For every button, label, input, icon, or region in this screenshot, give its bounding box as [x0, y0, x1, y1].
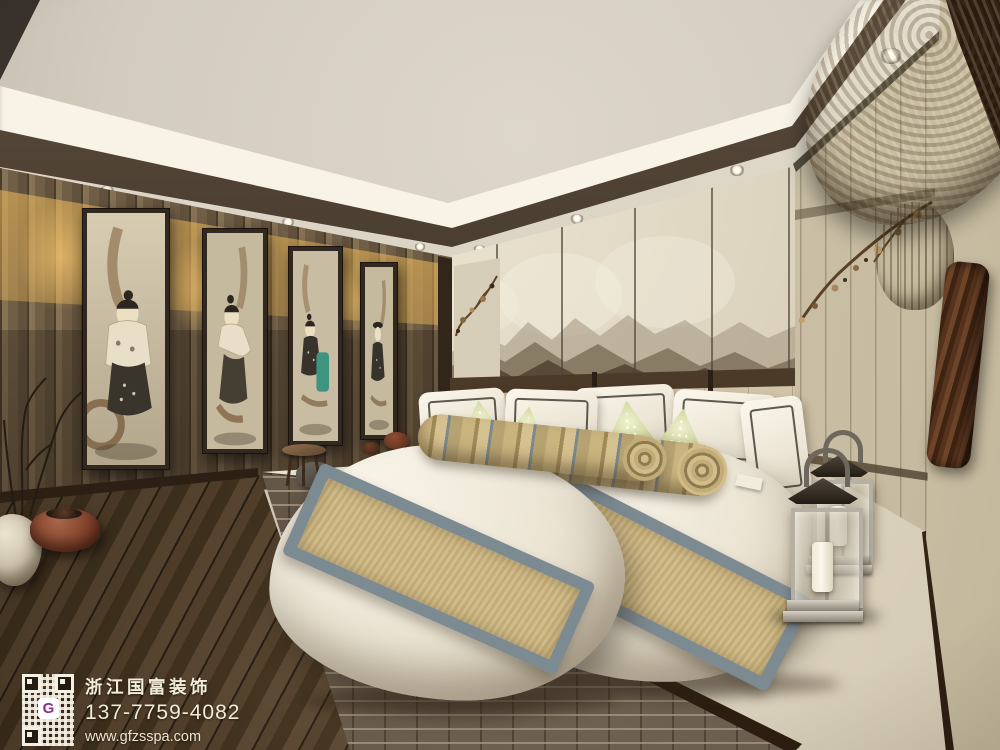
qr-code: G [22, 674, 74, 746]
qr-finder-icon [22, 674, 41, 693]
qr-center-logo: G [38, 698, 59, 719]
company-name: 浙江国富装饰 [85, 674, 240, 699]
phone-number: 137-7759-4082 [85, 701, 240, 725]
qr-finder-icon [22, 727, 41, 746]
watermark: G 浙江国富装饰 137-7759-4082 www.gfzsspa.com [22, 674, 240, 746]
watermark-text: 浙江国富装饰 137-7759-4082 www.gfzsspa.com [85, 674, 240, 745]
qr-finder-icon [55, 674, 74, 693]
bedroom-photo: G 浙江国富装饰 137-7759-4082 www.gfzsspa.com [0, 0, 1000, 750]
website-url: www.gfzsspa.com [85, 729, 240, 745]
photo-vignette [0, 0, 1000, 750]
